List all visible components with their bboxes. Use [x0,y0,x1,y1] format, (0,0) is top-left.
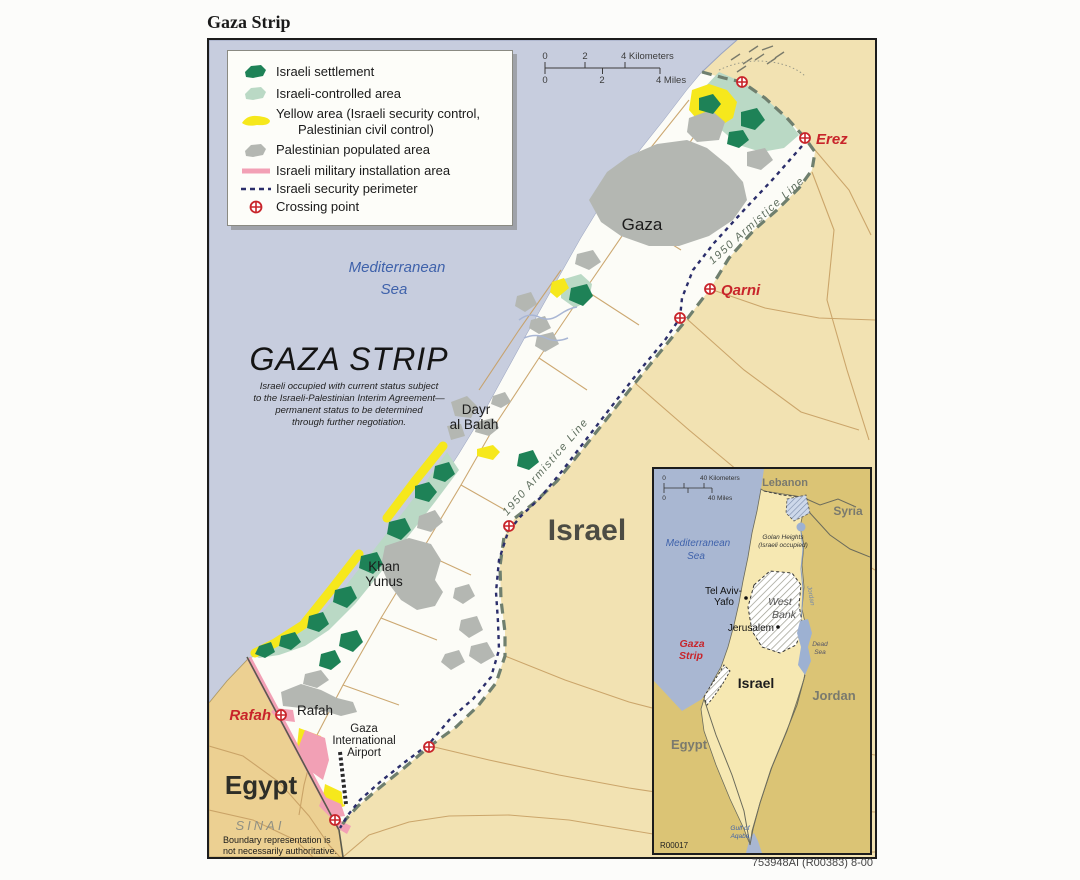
crossing-icon [504,521,514,531]
egypt-country-label: Egypt [225,770,298,800]
legend-item-crossing: Crossing point [236,199,502,215]
status-note-3: permanent status to be determined [274,405,423,416]
israeli-settlement-swatch-icon [236,62,276,82]
dayr-al-balah-label-1: Dayr [462,402,491,417]
inset-sea-of-galilee [797,523,806,532]
israeli-controlled-area-swatch-icon [236,84,276,104]
scale-mi-0: 0 [542,75,547,86]
palestinian-populated-area-swatch-icon [236,141,276,161]
inset-syria-label: Syria [833,504,863,518]
inset-deadsea-label-2: Sea [814,649,826,656]
inset-gulf-label-1: Gulf of [730,825,750,832]
airport-label-2: International [332,735,395,747]
page-title: Gaza Strip [207,12,291,33]
inset-scale-km-0: 0 [662,475,666,482]
qarni-crossing-label: Qarni [721,282,761,299]
mediterranean-sea-label-1: Mediterranean [349,259,446,276]
airport-label-1: Gaza [350,723,378,735]
boundary-note-1: Boundary representation is [223,835,331,845]
inset-golan-label-2: (Israeli occupied) [758,542,808,549]
khan-yunus-label-1: Khan [368,559,400,574]
inset-jordan-label: Jordan [812,688,855,703]
mediterranean-sea-label-2: Sea [381,281,408,298]
erez-crossing-label: Erez [816,131,848,148]
airport-label-3: Airport [347,747,382,759]
inset-regional-map: 0 40 Kilometers 0 40 Miles Lebanon Syria… [652,467,872,855]
rafah-town-label: Rafah [297,703,333,718]
inset-golan-label-1: Golan Heights [762,534,804,541]
crossing-icon [424,742,434,752]
dayr-al-balah-label-2: al Balah [450,417,499,432]
legend-label: Israeli settlement [276,64,374,80]
legend-item-controlled: Israeli-controlled area [236,84,502,104]
inset-map-canvas: 0 40 Kilometers 0 40 Miles Lebanon Syria… [654,469,870,853]
status-note-2: to the Israeli-Palestinian Interim Agree… [253,393,445,404]
legend-label-line1: Yellow area (Israeli security control, [276,106,480,121]
legend-label-line2: Palestinian civil control) [276,122,480,138]
inset-telaviv-label-2: Yafo [714,597,734,608]
inset-gaza-strip-label-1: Gaza [679,638,704,650]
inset-med-label-1: Mediterranean [666,538,731,549]
inset-westbank-label-2: Bank [772,609,797,621]
inset-ref-number: R00017 [660,841,689,850]
israeli-military-installation-swatch-icon [236,165,276,177]
legend-label: Crossing point [276,199,359,215]
inset-egypt-label: Egypt [671,737,708,752]
inset-telaviv-label-1: Tel Aviv- [705,586,742,597]
inset-westbank-label-1: West [768,596,793,608]
legend-label: Palestinian populated area [276,142,430,158]
inset-israel-label: Israel [738,675,775,691]
boundary-note-2: not necessarily authoritative. [223,846,337,856]
inset-scale-mi-0: 0 [662,495,666,502]
inset-scale-km: 40 Kilometers [700,475,740,482]
inset-telaviv-dot [744,596,748,600]
crossing-icon-qarni [705,284,715,294]
legend: Israeli settlement Israeli-controlled ar… [227,50,513,226]
inset-gulf-label-2: Aqaba [730,833,750,840]
status-note-4: through further negotiation. [292,417,406,428]
inset-scale-mi: 40 Miles [708,495,733,502]
khan-yunus-label-2: Yunus [365,574,403,589]
legend-item-perimeter: Israeli security perimeter [236,181,502,197]
inset-lebanon-label: Lebanon [762,477,808,489]
legend-label: Israeli military installation area [276,163,450,179]
legend-label: Israeli-controlled area [276,86,401,102]
inset-jerusalem-dot [776,625,780,629]
status-note-1: Israeli occupied with current status sub… [260,381,439,392]
gaza-strip-map: 0 2 4 Kilometers 0 2 4 Miles Mediterrane… [207,38,877,859]
legend-item-populated: Palestinian populated area [236,141,502,161]
israeli-security-perimeter-swatch-icon [236,183,276,195]
legend-item-military: Israeli military installation area [236,163,502,179]
rafah-crossing-label: Rafah [229,707,271,724]
crossing-icon [675,313,685,323]
crossing-point-swatch-icon [236,199,276,215]
inset-jerusalem-label: Jerusalem [728,623,774,634]
legend-item-settlement: Israeli settlement [236,62,502,82]
legend-label: Yellow area (Israeli security control, P… [276,106,480,139]
map-credit: 753948AI (R00383) 8-00 [207,857,873,869]
scale-mi-4: 4 Miles [656,75,686,86]
scale-mi-2: 2 [599,75,604,86]
sinai-label: SINAI [236,818,285,833]
yellow-area-swatch-icon [236,111,276,133]
legend-item-yellow-area: Yellow area (Israeli security control, P… [236,106,502,139]
legend-label: Israeli security perimeter [276,181,418,197]
scale-km-0: 0 [542,51,547,62]
crossing-icon-erez [800,133,810,143]
crossing-icon-rafah [276,710,286,720]
scale-km-4: 4 Kilometers [621,51,674,62]
inset-gaza-strip-label-2: Strip [679,650,704,662]
inset-deadsea-label-1: Dead [812,641,828,648]
inset-med-label-2: Sea [687,551,705,562]
crossing-icon [737,77,747,87]
gaza-strip-title-label: GAZA STRIP [249,341,448,377]
israel-country-label: Israel [548,514,626,547]
crossing-icon [330,815,340,825]
gaza-city-label: Gaza [622,215,663,234]
scale-km-2: 2 [582,51,587,62]
